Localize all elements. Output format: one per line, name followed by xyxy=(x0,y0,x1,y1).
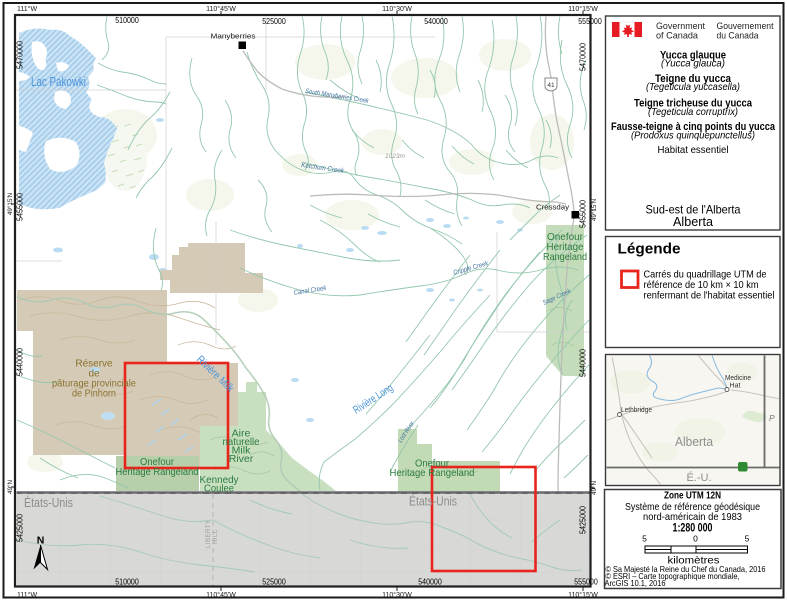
svg-text:Coulee: Coulee xyxy=(204,483,234,495)
svg-text:de Pinhorn: de Pinhorn xyxy=(72,389,116,400)
svg-text:N: N xyxy=(37,535,45,547)
svg-text:510000: 510000 xyxy=(115,16,139,25)
svg-text:5: 5 xyxy=(642,534,647,544)
svg-text:555000: 555000 xyxy=(574,578,598,587)
svg-text:Carrés du quadrillage UTM de: Carrés du quadrillage UTM de xyxy=(644,270,767,281)
svg-text:Gouvernement: Gouvernement xyxy=(717,21,774,31)
svg-text:110°30'W: 110°30'W xyxy=(382,591,412,599)
svg-text:Government: Government xyxy=(656,21,705,31)
svg-text:5470000: 5470000 xyxy=(579,43,588,71)
svg-text:110°45'W: 110°45'W xyxy=(206,591,236,599)
svg-text:49°15'N: 49°15'N xyxy=(590,198,598,221)
svg-text:5455000: 5455000 xyxy=(16,193,25,221)
svg-text:of Canada: of Canada xyxy=(656,31,699,41)
svg-text:0: 0 xyxy=(693,534,698,544)
svg-text:540000: 540000 xyxy=(424,17,448,26)
svg-text:5425000: 5425000 xyxy=(16,514,25,542)
svg-text:Habitat essentiel: Habitat essentiel xyxy=(658,144,729,156)
svg-text:Légende: Légende xyxy=(618,241,681,258)
svg-text:555000: 555000 xyxy=(578,17,602,26)
svg-text:River: River xyxy=(229,453,254,465)
svg-text:5470000: 5470000 xyxy=(16,41,25,69)
svg-text:États-Unis: États-Unis xyxy=(409,494,457,509)
svg-text:Alberta: Alberta xyxy=(675,435,713,449)
svg-text:110°45'W: 110°45'W xyxy=(206,5,236,13)
svg-text:41: 41 xyxy=(547,82,555,89)
svg-text:LIBERTY: LIBERTY xyxy=(206,520,212,548)
svg-text:(Yucca glauca): (Yucca glauca) xyxy=(661,58,725,70)
svg-text:Hat: Hat xyxy=(730,383,741,390)
svg-text:5455000: 5455000 xyxy=(579,200,588,228)
svg-text:1023m: 1023m xyxy=(385,153,405,160)
svg-text:Rangeland: Rangeland xyxy=(543,251,587,263)
svg-text:É.-U.: É.-U. xyxy=(686,471,711,484)
svg-text:Heritage Rangeland: Heritage Rangeland xyxy=(116,466,199,478)
svg-text:ArcGIS 10.1, 2016: ArcGIS 10.1, 2016 xyxy=(605,578,666,588)
svg-text:nord-américain de 1983: nord-américain de 1983 xyxy=(643,511,742,523)
svg-text:49°N: 49°N xyxy=(590,481,598,496)
svg-text:Manyberries: Manyberries xyxy=(211,32,256,41)
svg-text:Zone UTM 12N: Zone UTM 12N xyxy=(664,490,721,502)
svg-text:HILL: HILL xyxy=(213,529,219,544)
svg-text:P: P xyxy=(769,413,775,423)
svg-text:renfermant de l'habitat essent: renfermant de l'habitat essentiel xyxy=(644,291,775,302)
svg-text:référence de 10 km × 10 km: référence de 10 km × 10 km xyxy=(644,280,759,291)
svg-text:49°15'N: 49°15'N xyxy=(6,192,14,215)
svg-text:du Canada: du Canada xyxy=(717,31,760,41)
svg-text:49°N: 49°N xyxy=(6,480,14,495)
svg-text:(Prodoxus quinquepunctellus): (Prodoxus quinquepunctellus) xyxy=(631,130,755,142)
svg-text:Medicine: Medicine xyxy=(725,375,751,382)
svg-text:525000: 525000 xyxy=(262,578,286,587)
svg-text:États-Unis: États-Unis xyxy=(24,495,73,510)
svg-text:5: 5 xyxy=(745,534,750,544)
svg-text:110°15'W: 110°15'W xyxy=(568,591,598,599)
svg-text:5440000: 5440000 xyxy=(579,349,588,377)
svg-text:5440000: 5440000 xyxy=(16,348,25,376)
svg-text:111°W: 111°W xyxy=(17,591,37,599)
svg-text:110°15'W: 110°15'W xyxy=(568,5,598,13)
svg-text:5425000: 5425000 xyxy=(579,506,588,534)
svg-text:110°30'W: 110°30'W xyxy=(382,5,412,13)
svg-text:525000: 525000 xyxy=(262,17,286,26)
svg-text:Heritage Rangeland: Heritage Rangeland xyxy=(390,467,475,479)
svg-text:Alberta: Alberta xyxy=(673,214,714,229)
svg-text:Lethbridge: Lethbridge xyxy=(621,407,652,414)
svg-text:540000: 540000 xyxy=(418,578,442,587)
svg-text:Cressday: Cressday xyxy=(536,203,569,212)
svg-text:(Tegeticula corruptrix): (Tegeticula corruptrix) xyxy=(648,106,738,118)
svg-text:(Tegeticula yuccasella): (Tegeticula yuccasella) xyxy=(646,81,740,93)
svg-text:510000: 510000 xyxy=(115,578,139,587)
svg-text:111°W: 111°W xyxy=(17,5,37,13)
svg-text:Lac Pakowki: Lac Pakowki xyxy=(31,75,86,89)
